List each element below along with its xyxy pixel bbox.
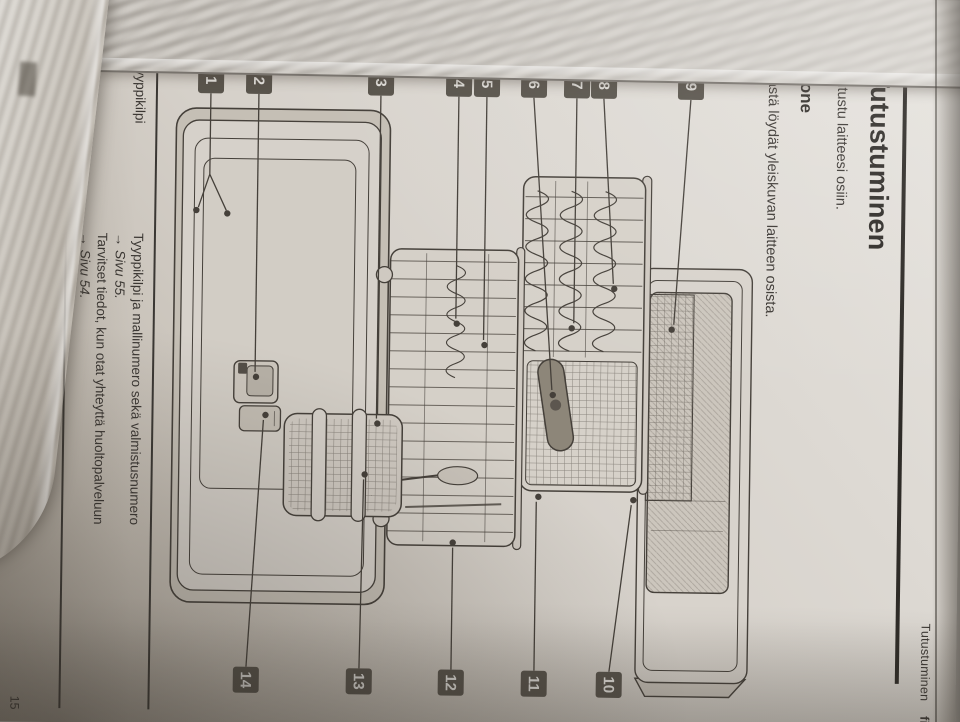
cutlery-basket — [283, 408, 403, 522]
detergent-dispenser — [234, 361, 279, 404]
svg-text:5: 5 — [478, 80, 495, 89]
callout-11: 11 — [521, 671, 547, 697]
svg-text:2: 2 — [250, 77, 267, 86]
callout-14: 14 — [233, 667, 259, 693]
svg-text:13: 13 — [350, 673, 367, 690]
table-desc: Tyyppikilpi ja mallinumero sekä valmistu… — [69, 232, 147, 709]
door-panel — [170, 108, 391, 605]
upper-basket — [519, 175, 651, 495]
svg-text:8: 8 — [595, 81, 612, 90]
manual-page: Tutustuminenfi Tutustuminen Tutustu lait… — [0, 21, 960, 722]
dishwasher-overview-figure: 1 2 3 4 5 6 7 8 9 10 11 12 13 14 — [150, 23, 760, 722]
svg-text:10: 10 — [600, 676, 617, 693]
page-number: 15 — [7, 696, 21, 710]
svg-text:6: 6 — [525, 80, 542, 89]
running-header-lang: fi — [917, 716, 931, 722]
cabinet-body — [635, 268, 753, 698]
spoon-silhouette — [438, 466, 478, 485]
intro-text: Tutustu laitteesi osiin. — [832, 71, 850, 210]
svg-text:11: 11 — [525, 676, 542, 692]
chapter-rule — [895, 72, 907, 684]
callout-10: 10 — [596, 672, 622, 698]
svg-text:7: 7 — [568, 81, 585, 90]
section-intro: Tästä löydät yleiskuvan laitteen osista. — [762, 70, 781, 318]
blurred-callout-ghost — [18, 61, 37, 96]
svg-text:3: 3 — [372, 78, 389, 87]
svg-text:4: 4 — [450, 79, 467, 88]
book-photo-scene: Tutustuminenfi Tutustuminen Tutustu lait… — [0, 0, 960, 722]
book-edge-right — [932, 0, 960, 722]
page-title: Tutustuminen — [862, 71, 895, 250]
running-header: Tutustuminenfi — [917, 623, 932, 722]
callout-13: 13 — [346, 668, 372, 694]
rinse-aid-dispenser — [239, 406, 280, 432]
svg-text:9: 9 — [682, 83, 699, 92]
svg-text:14: 14 — [237, 671, 254, 689]
svg-text:12: 12 — [442, 674, 459, 691]
svg-text:1: 1 — [202, 76, 219, 85]
callout-12: 12 — [438, 669, 464, 695]
running-header-chapter: Tutustuminen — [918, 623, 933, 701]
